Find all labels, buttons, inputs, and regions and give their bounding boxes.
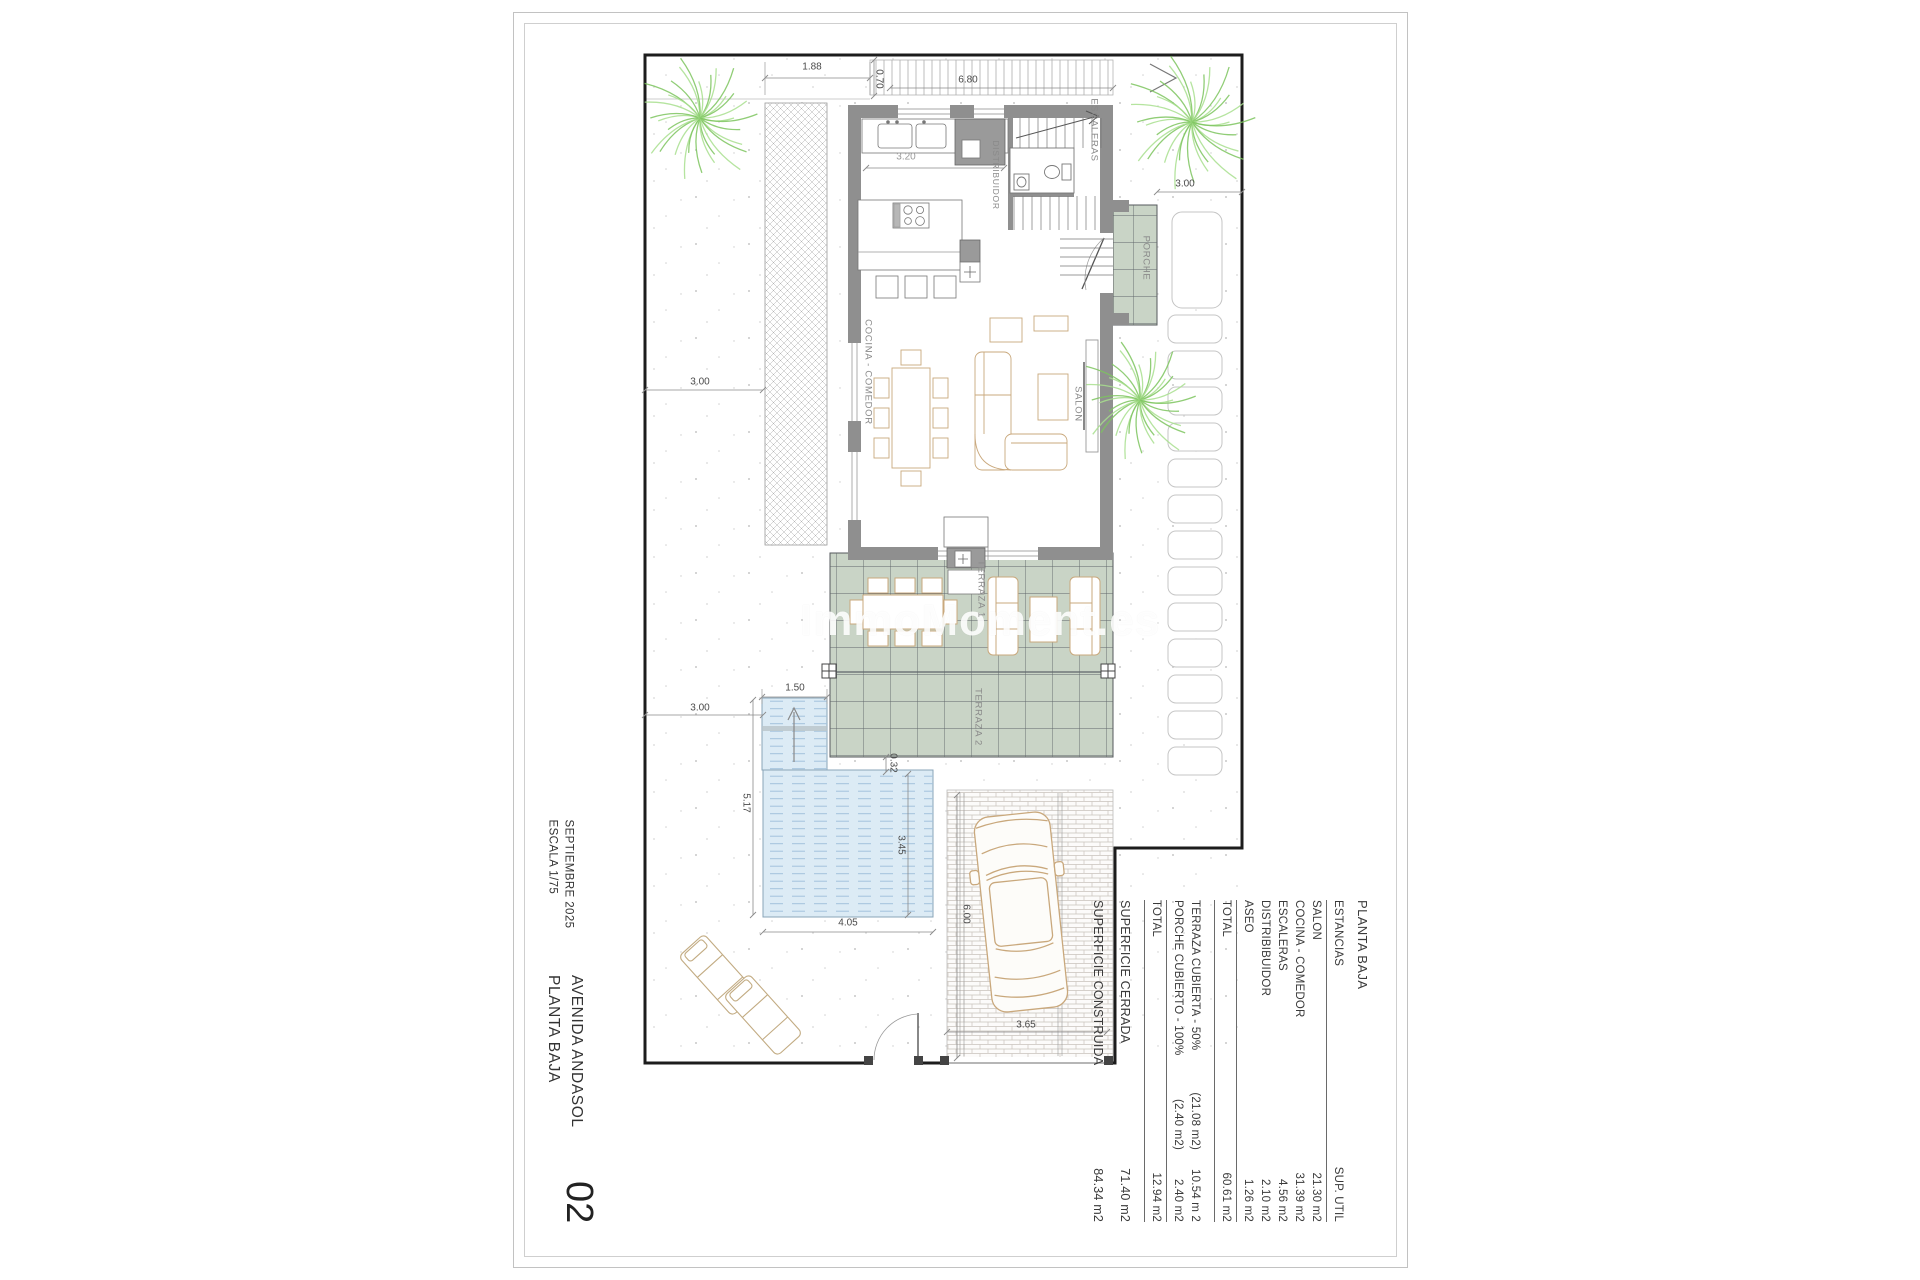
label-hallway: DISTRIBUIDOR: [991, 140, 1001, 209]
plan-title: PLANTA BAJA: [542, 975, 565, 1185]
dim-pool-bottom-width: 4.05: [838, 918, 857, 929]
dim-kitchen-width: 3.20: [896, 152, 915, 163]
col-room: ESTANCIAS: [1329, 900, 1346, 1150]
dim-porch-side: 3.00: [1175, 179, 1194, 190]
area-table-title: PLANTA BAJA: [1355, 900, 1370, 1222]
label-porch: PORCHE: [1141, 236, 1152, 281]
label-terrace-2: TERRAZA 2: [973, 688, 984, 746]
tv-bench: [1086, 340, 1098, 452]
dim-garden-lower: 3.00: [690, 703, 709, 714]
stool: [905, 276, 927, 298]
label-living-room: SALON: [1073, 386, 1084, 422]
table-total-row: TOTAL 60.61 m2: [1217, 900, 1234, 1222]
stool: [934, 276, 956, 298]
table-total-row: TOTAL 12.94 m2: [1147, 900, 1164, 1222]
watermark: ImmoMoment.es: [800, 596, 1200, 646]
dim-pool-offset: 0.32: [888, 753, 899, 772]
label-kitchen-dining: COCINA - COMEDOR: [863, 319, 874, 425]
table-row: SALON 21.30 m2: [1307, 900, 1324, 1222]
col-area: SUP. UTIL: [1329, 1150, 1346, 1222]
dim-drive-length: 6.00: [961, 904, 972, 923]
table-row: ESCALERAS 4.56 m2: [1273, 900, 1290, 1222]
dim-pool-width: 3.45: [896, 835, 907, 854]
table-row: DISTRIBIBUIDOR 2.10 m2: [1256, 900, 1273, 1222]
label-stairs: ESCALERAS: [1089, 98, 1100, 161]
label-terrace-1: TERRAZA 1: [976, 560, 987, 618]
toilet-tank: [1062, 164, 1071, 180]
stool: [876, 276, 898, 298]
titleblock-project: AVENIDA ANDASOL PLANTA BAJA: [538, 975, 588, 1185]
bathroom: [1010, 148, 1074, 193]
dim-drive-width: 3.65: [1016, 1020, 1035, 1031]
table-row: COCINA - COMEDOR 31.39 m2: [1290, 900, 1307, 1222]
dim-garden-upper: 3.00: [690, 377, 709, 388]
dim-top-depth: 0.70: [874, 69, 885, 88]
project-name: AVENIDA ANDASOL: [565, 975, 588, 1185]
floor-plan-sheet: ImmoMoment.es COCINA - COMEDOR SALON DIS…: [0, 0, 1920, 1280]
sheet-number: 02: [554, 1181, 600, 1241]
table-row: PORCHE CUBIERTO - 100% (2.40 m2) 2.40 m2: [1169, 900, 1186, 1222]
area-table-header: ESTANCIAS SUP. UTIL: [1329, 900, 1346, 1222]
dim-top-left-width: 1.88: [802, 62, 821, 73]
area-table: PLANTA BAJA ESTANCIAS SUP. UTIL SALON 21…: [1098, 900, 1370, 1222]
toilet-icon: [1045, 166, 1060, 179]
dim-pool-length: 5.17: [741, 793, 752, 812]
table-row: TERRAZA CUBIERTA - 50% (21.08 m2) 10.54 …: [1186, 900, 1203, 1222]
house: [848, 105, 1113, 594]
built-surface-row: SUPERFICIE CONSTRUIDA 84.34 m2: [1090, 900, 1106, 1222]
dim-pool-steps-width: 1.50: [785, 683, 804, 694]
table-row: ASEO 1.26 m2: [1239, 900, 1256, 1222]
dim-top-width: 6.80: [958, 75, 977, 86]
closed-surface-row: SUPERFICIE CERRADA 71.40 m2: [1117, 900, 1133, 1222]
kitchen-sink-icon: [878, 124, 912, 148]
gravel-strip: [765, 103, 827, 545]
